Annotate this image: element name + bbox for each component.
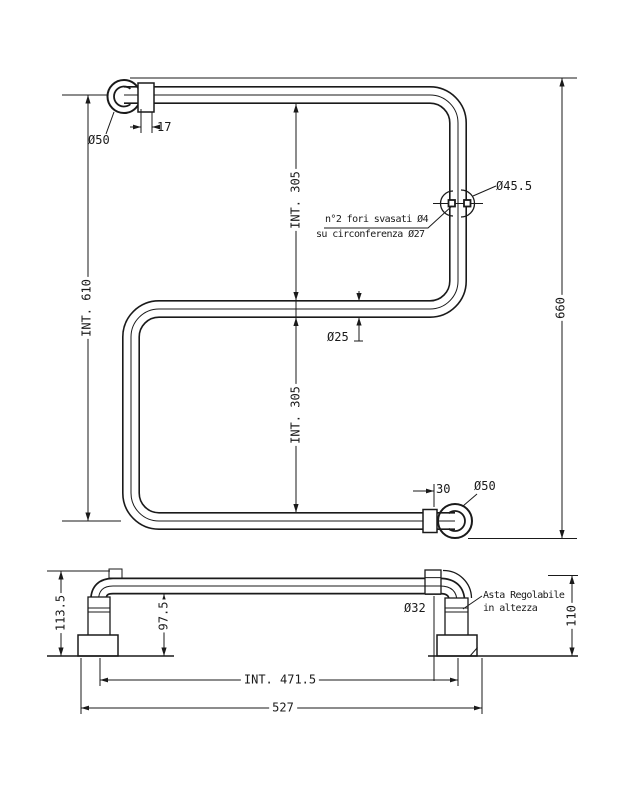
leader-dia50-top <box>106 112 114 134</box>
label-dia-25: Ø25 <box>327 331 349 344</box>
label-note-adjustable-line1: Asta Regolabile <box>483 590 564 602</box>
clamp-bottom-right <box>423 510 437 533</box>
side-view-bases <box>78 635 478 656</box>
label-dim-527: 527 <box>269 702 297 715</box>
label-dia-32: Ø32 <box>403 602 427 615</box>
label-dim-17: 17 <box>157 121 171 134</box>
leader-dia50-bottom <box>463 494 477 506</box>
label-dia50-bottom: Ø50 <box>474 480 496 493</box>
label-dim-97-5: 97.5 <box>158 600 171 633</box>
label-dim-int-471-5: INT. 471.5 <box>241 674 319 687</box>
label-dia-45-5: Ø45.5 <box>496 180 532 193</box>
leader-dia45 <box>473 186 496 196</box>
label-dim-int-305-top: INT. 305 <box>290 169 303 231</box>
label-note-adjustable-line2: in altezza <box>483 603 537 615</box>
label-dim-660: 660 <box>555 295 568 321</box>
technical-drawing-canvas: Ø50 17 INT. 610 INT. 305 INT. 305 660 n°… <box>0 0 622 800</box>
label-dia50-top: Ø50 <box>88 134 110 147</box>
label-dim-int-610: INT. 610 <box>81 277 94 339</box>
front-view-tube <box>124 95 458 521</box>
side-view-clamp <box>425 570 441 594</box>
label-dim-110: 110 <box>566 603 579 629</box>
label-dim-113-5: 113.5 <box>55 593 68 633</box>
label-dim-int-305-bottom: INT. 305 <box>290 384 303 446</box>
label-note-holes-line1: n°2 fori svasati Ø4 <box>325 214 428 226</box>
label-note-holes-line2: su circonferenza Ø27 <box>316 229 424 241</box>
clamp-top-left <box>138 83 154 112</box>
side-view-tab <box>109 569 122 578</box>
label-dim-30: 30 <box>436 483 450 496</box>
